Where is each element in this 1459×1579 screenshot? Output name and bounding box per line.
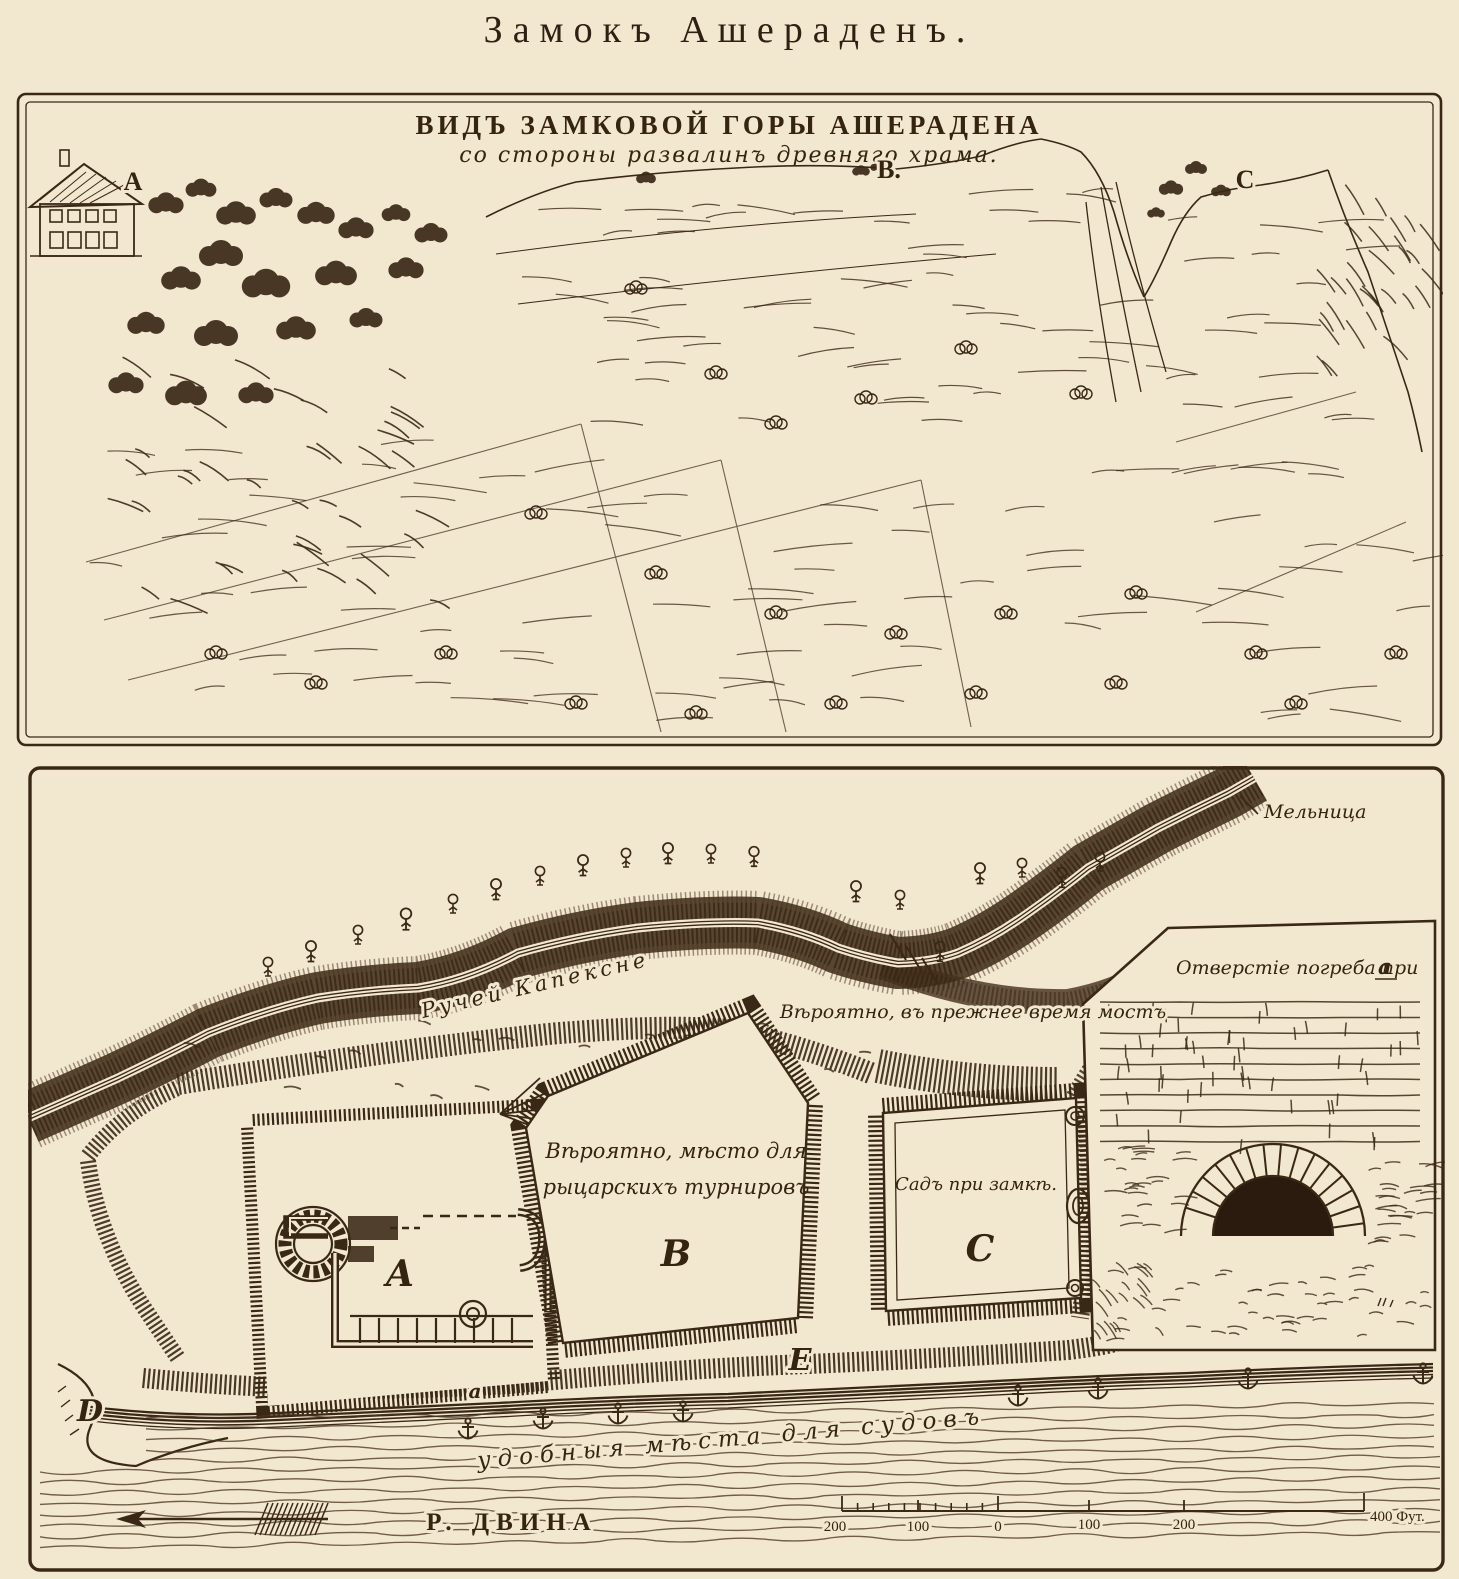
view-marker-a: A [124, 167, 143, 196]
castle-garden: Садъ при замкѣ. C [883, 1098, 1089, 1311]
plan-marker-cellar: a [469, 1379, 482, 1403]
terrain-strokes-upper [522, 189, 1400, 426]
arrow-feather [255, 1503, 328, 1535]
view-drawing: ВИДЪ ЗАМКОВОЙ ГОРЫ АШЕРАДЕНА со стороны … [16, 92, 1443, 747]
inset-frame [1083, 921, 1435, 1350]
castle-plan: A [253, 1111, 548, 1406]
scale-tick-label: 200 [824, 1519, 847, 1535]
view-panel: ВИДЪ ЗАМКОВОЙ ГОРЫ АШЕРАДЕНА со стороны … [16, 92, 1443, 747]
view-subtitle: со стороны развалинъ древняго храма. [459, 143, 998, 168]
river-label: Р. ДВИНА [426, 1509, 597, 1536]
manor-house [30, 150, 142, 256]
scale-tick-label: 0 [994, 1519, 1002, 1535]
plan-marker-tournament: B [660, 1233, 691, 1275]
scale-tick-label: 100 [1078, 1517, 1101, 1533]
plan-marker-d: D [76, 1394, 103, 1429]
scale-tick-label: 200 [1173, 1517, 1196, 1533]
terrain-strokes-cliff [1317, 185, 1443, 377]
skyline [486, 139, 1422, 452]
tree-masses [108, 161, 1231, 405]
mill-label: Мельница [1263, 801, 1366, 823]
plan-marker-garden: C [966, 1228, 995, 1270]
flow-arrow [116, 1503, 328, 1535]
cellar-inset: Отверстіе погреба при a [1083, 921, 1445, 1350]
tournament-label-1: Вѣроятно, мѣсто для [544, 1139, 806, 1163]
view-frame-inner [26, 102, 1433, 737]
view-marker-c: C [1236, 165, 1255, 194]
tournament-ground: Вѣроятно, мѣсто для рыцарскихъ турнировъ… [526, 1013, 809, 1343]
tournament-label-2: рыцарскихъ турнировъ [543, 1175, 810, 1199]
bridge-label: Вѣроятно, въ прежнее время мостъ [779, 1001, 1166, 1023]
plan-marker-e: E [788, 1343, 813, 1378]
scale-tick-label: 100 [907, 1519, 930, 1535]
plan-marker-castle: A [383, 1253, 414, 1295]
terrain-strokes-lower [90, 440, 1443, 721]
plan-drawing: A Вѣроятно, мѣсто для рыцарскихъ турниро… [28, 766, 1445, 1572]
engraving-page: Замокъ Ашераденъ. ВИДЪ ЗАМКОВОЙ ГОРЫ АШЕ… [0, 0, 1459, 1579]
scale-end-label: 400 Фут. [1370, 1509, 1425, 1525]
bushes [205, 281, 1407, 719]
inset-title-ref: a [1378, 954, 1392, 979]
field-lines [86, 392, 1406, 732]
plan-panel: A Вѣроятно, мѣсто для рыцарскихъ турниро… [28, 766, 1445, 1572]
view-marker-b: B. [877, 155, 901, 184]
scale-bar: 200 100 0 100 200 400 Фут. [824, 1493, 1425, 1535]
view-title: ВИДЪ ЗАМКОВОЙ ГОРЫ АШЕРАДЕНА [416, 110, 1043, 140]
garden-label: Садъ при замкѣ. [895, 1174, 1057, 1195]
page-title: Замокъ Ашераденъ. [0, 8, 1459, 52]
